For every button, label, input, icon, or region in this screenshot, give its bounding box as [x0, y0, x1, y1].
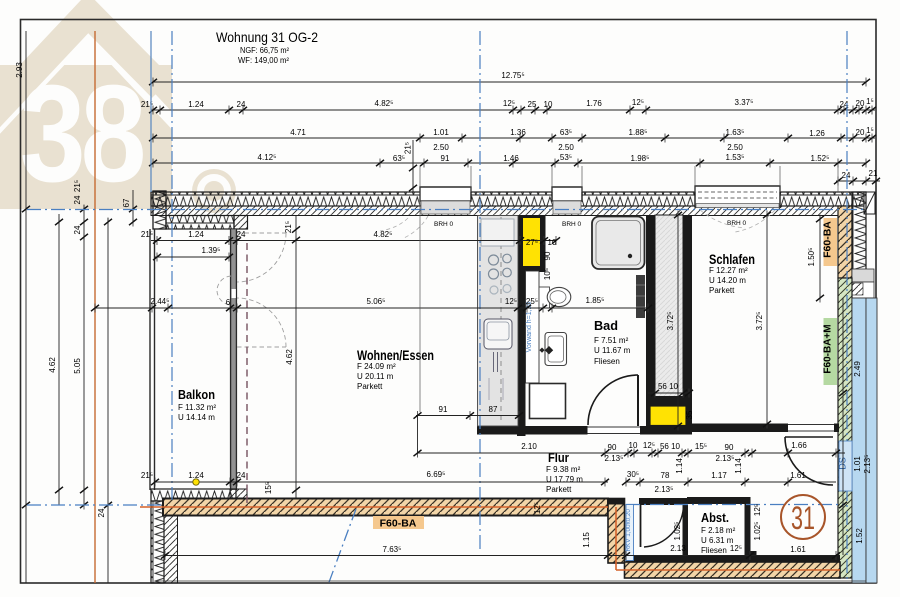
- svg-text:4.82⁵: 4.82⁵: [374, 230, 393, 239]
- svg-text:F 9.38 m²: F 9.38 m²: [546, 465, 581, 474]
- svg-text:1.26: 1.26: [809, 129, 825, 138]
- svg-text:1.52⁵: 1.52⁵: [811, 154, 830, 163]
- svg-text:21⁵: 21⁵: [141, 230, 153, 239]
- svg-text:4.12⁵: 4.12⁵: [258, 153, 277, 162]
- svg-text:1.24: 1.24: [188, 230, 204, 239]
- svg-text:1⁵: 1⁵: [866, 126, 874, 135]
- svg-text:91: 91: [441, 154, 450, 163]
- svg-text:Fliesen: Fliesen: [594, 357, 620, 366]
- svg-text:2.49: 2.49: [853, 361, 862, 377]
- svg-text:3.72⁵: 3.72⁵: [666, 312, 675, 331]
- svg-text:90: 90: [725, 443, 734, 452]
- svg-text:12⁵: 12⁵: [503, 99, 515, 108]
- svg-text:63⁵: 63⁵: [393, 154, 405, 163]
- svg-text:WF: 149,00 m²: WF: 149,00 m²: [238, 56, 289, 65]
- svg-text:2.13: 2.13: [670, 544, 686, 553]
- svg-text:6.69⁵: 6.69⁵: [427, 470, 446, 479]
- svg-text:35: 35: [685, 410, 694, 419]
- svg-text:Parkett: Parkett: [357, 382, 383, 391]
- svg-text:21⁵: 21⁵: [284, 221, 293, 233]
- svg-text:Wohnen/Essen: Wohnen/Essen: [357, 347, 434, 363]
- svg-text:24: 24: [73, 225, 82, 234]
- svg-text:U 14.14 m: U 14.14 m: [178, 413, 215, 422]
- svg-text:BRH 0: BRH 0: [434, 221, 454, 228]
- svg-text:25: 25: [528, 100, 537, 109]
- svg-text:1.01: 1.01: [853, 456, 862, 472]
- svg-text:21⁵: 21⁵: [404, 142, 413, 154]
- svg-text:Wohnung 31 OG-2: Wohnung 31 OG-2: [216, 29, 318, 45]
- svg-text:2.93: 2.93: [15, 62, 24, 78]
- svg-text:12⁵: 12⁵: [753, 504, 762, 516]
- svg-text:24: 24: [237, 471, 246, 480]
- svg-text:2.13⁵: 2.13⁵: [655, 485, 674, 494]
- svg-text:24: 24: [237, 100, 246, 109]
- svg-text:10⁵: 10⁵: [543, 268, 552, 280]
- svg-text:F 7.51 m²: F 7.51 m²: [594, 336, 629, 345]
- svg-text:1.88⁵: 1.88⁵: [629, 128, 648, 137]
- svg-text:1.39⁵: 1.39⁵: [202, 246, 221, 255]
- svg-text:F 12.27 m²: F 12.27 m²: [709, 266, 748, 275]
- svg-text:1.46: 1.46: [503, 154, 519, 163]
- svg-text:10: 10: [544, 100, 553, 109]
- svg-text:1.14: 1.14: [734, 458, 743, 474]
- svg-text:U 6.31 m: U 6.31 m: [701, 536, 734, 545]
- svg-text:5.06⁵: 5.06⁵: [367, 297, 386, 306]
- svg-text:15⁵: 15⁵: [695, 442, 707, 451]
- svg-text:4.82⁵: 4.82⁵: [375, 99, 394, 108]
- svg-text:F 24.09 m²: F 24.09 m²: [357, 362, 396, 371]
- svg-text:10: 10: [629, 441, 638, 450]
- svg-text:56 10: 56 10: [658, 382, 679, 391]
- svg-text:3.37⁵: 3.37⁵: [735, 98, 754, 107]
- svg-text:U 17.79 m: U 17.79 m: [546, 475, 583, 484]
- svg-text:91: 91: [439, 405, 448, 414]
- svg-text:1.53⁵: 1.53⁵: [726, 153, 745, 162]
- svg-text:24: 24: [842, 171, 851, 180]
- svg-text:Bad: Bad: [594, 318, 618, 333]
- svg-text:15⁵: 15⁵: [264, 482, 273, 494]
- svg-text:Abst.: Abst.: [701, 510, 729, 525]
- svg-text:2.50: 2.50: [433, 143, 449, 152]
- svg-text:78: 78: [661, 471, 670, 480]
- svg-text:DS: DS: [838, 457, 848, 470]
- svg-text:U 11.67 m: U 11.67 m: [594, 346, 631, 355]
- svg-text:53⁵: 53⁵: [560, 153, 572, 162]
- svg-text:27⁵: 27⁵: [526, 238, 538, 247]
- svg-text:F 11.32 m²: F 11.32 m²: [178, 403, 216, 412]
- svg-text:Parkett: Parkett: [709, 286, 735, 295]
- svg-text:1.61: 1.61: [790, 545, 806, 554]
- svg-text:BRH 0: BRH 0: [727, 220, 747, 227]
- svg-text:63⁵: 63⁵: [560, 128, 572, 137]
- svg-text:21⁵: 21⁵: [141, 471, 153, 480]
- svg-text:3.72⁵: 3.72⁵: [755, 312, 764, 331]
- svg-text:67: 67: [122, 198, 131, 207]
- svg-text:1.66: 1.66: [791, 441, 807, 450]
- svg-text:BRH 0: BRH 0: [562, 221, 582, 228]
- svg-text:1.52: 1.52: [855, 528, 864, 544]
- svg-text:10: 10: [548, 238, 557, 247]
- svg-text:24: 24: [73, 195, 82, 204]
- svg-text:6: 6: [226, 298, 231, 307]
- svg-text:2.10: 2.10: [521, 442, 537, 451]
- svg-text:1.36: 1.36: [510, 128, 526, 137]
- svg-text:2.13⁵: 2.13⁵: [863, 455, 872, 474]
- svg-text:56 10: 56 10: [660, 442, 681, 451]
- svg-text:NGF: 66,75 m²: NGF: 66,75 m²: [240, 46, 289, 55]
- svg-text:F60-BA+M: F60-BA+M: [823, 324, 834, 373]
- svg-text:2.13⁵: 2.13⁵: [716, 454, 735, 463]
- svg-text:30⁵: 30⁵: [627, 470, 639, 479]
- svg-text:F60-BA: F60-BA: [822, 221, 834, 258]
- svg-text:1.14: 1.14: [675, 458, 684, 474]
- svg-text:1.98⁵: 1.98⁵: [631, 154, 650, 163]
- svg-text:20: 20: [856, 99, 865, 108]
- svg-text:1.76: 1.76: [586, 99, 602, 108]
- svg-text:24: 24: [97, 508, 106, 517]
- svg-text:2.50: 2.50: [727, 143, 743, 152]
- svg-text:RKV 1,00x0,20: RKV 1,00x0,20: [625, 509, 632, 552]
- svg-text:Schlafen: Schlafen: [709, 252, 755, 267]
- svg-text:12⁵: 12⁵: [505, 297, 517, 306]
- svg-text:F 2.18 m²: F 2.18 m²: [701, 526, 736, 535]
- svg-text:U 14.20 m: U 14.20 m: [709, 276, 746, 285]
- svg-text:1.02⁵: 1.02⁵: [753, 522, 762, 541]
- svg-text:1.15: 1.15: [582, 532, 591, 548]
- svg-text:Balkon: Balkon: [178, 388, 215, 402]
- svg-text:1⁵: 1⁵: [866, 97, 874, 106]
- svg-text:21: 21: [869, 169, 878, 178]
- svg-text:F60-BA: F60-BA: [380, 518, 417, 530]
- svg-text:12⁵: 12⁵: [632, 98, 644, 107]
- svg-text:12⁵: 12⁵: [643, 441, 655, 450]
- svg-text:20: 20: [856, 128, 865, 137]
- svg-text:12.75⁵: 12.75⁵: [501, 71, 524, 80]
- svg-text:1.24: 1.24: [188, 100, 204, 109]
- svg-text:31: 31: [791, 500, 815, 536]
- svg-text:1.02⁵: 1.02⁵: [673, 522, 682, 541]
- svg-text:12⁵: 12⁵: [533, 502, 542, 514]
- svg-text:1.63⁵: 1.63⁵: [726, 128, 745, 137]
- svg-text:4.71: 4.71: [290, 128, 306, 137]
- svg-text:21⁵: 21⁵: [73, 180, 82, 192]
- svg-text:90: 90: [543, 251, 552, 260]
- svg-text:5.05: 5.05: [73, 358, 82, 374]
- svg-text:1.85⁵: 1.85⁵: [586, 296, 605, 305]
- svg-text:25⁵: 25⁵: [526, 297, 538, 306]
- svg-text:12⁵: 12⁵: [730, 544, 742, 553]
- svg-text:2.13⁵: 2.13⁵: [605, 454, 624, 463]
- svg-text:2.44⁵: 2.44⁵: [151, 297, 170, 306]
- svg-text:90: 90: [608, 443, 617, 452]
- svg-text:Fliesen: Fliesen: [701, 546, 727, 555]
- svg-text:2.50: 2.50: [558, 143, 574, 152]
- svg-text:1.17: 1.17: [711, 471, 727, 480]
- svg-text:U 20.11 m: U 20.11 m: [357, 372, 394, 381]
- svg-text:1.50⁵: 1.50⁵: [807, 248, 816, 267]
- svg-text:1.61: 1.61: [790, 471, 806, 480]
- svg-text:1.01: 1.01: [433, 128, 449, 137]
- svg-text:7.63⁵: 7.63⁵: [383, 545, 402, 554]
- svg-text:24: 24: [237, 230, 246, 239]
- svg-text:Parkett: Parkett: [546, 485, 572, 494]
- svg-text:4.62: 4.62: [48, 357, 57, 373]
- svg-text:4.62: 4.62: [285, 349, 294, 365]
- svg-text:87: 87: [489, 405, 498, 414]
